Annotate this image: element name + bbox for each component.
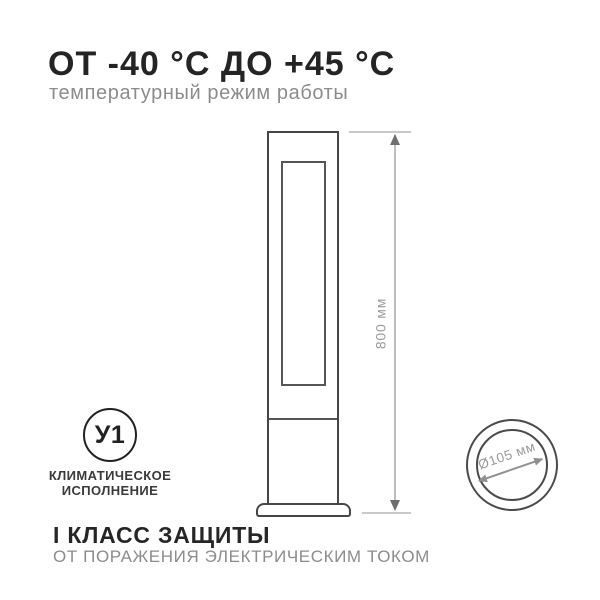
arrowhead-up-icon	[390, 134, 400, 145]
protection-class-title: I КЛАСС ЗАЩИТЫ	[53, 522, 270, 548]
height-dimension-label: 800 мм	[373, 294, 390, 354]
climate-rating-label: КЛИМАТИЧЕСКОЕ ИСПОЛНЕНИЕ	[25, 469, 195, 498]
dimension-line-vertical	[394, 135, 396, 507]
temperature-range-subtitle: температурный режим работы	[49, 81, 348, 105]
extension-line-top	[349, 131, 411, 133]
protection-class-subtitle: ОТ ПОРАЖЕНИЯ ЭЛЕКТРИЧЕСКИМ ТОКОМ	[53, 547, 430, 567]
climate-label-line1: КЛИМАТИЧЕСКОЕ	[25, 469, 195, 484]
arrowhead-down-icon	[390, 500, 400, 511]
lamp-diffuser-window	[281, 161, 326, 386]
extension-line-bottom	[362, 512, 411, 514]
temperature-range-title: ОТ -40 °С ДО +45 °С	[48, 46, 395, 83]
lamp-body-divider-line	[269, 418, 337, 420]
climate-badge-icon: У1	[83, 408, 137, 462]
lamp-base-outline	[256, 503, 351, 517]
product-spec-infographic: { "header": { "title": "ОТ -40 °С ДО +45…	[0, 0, 600, 600]
climate-badge-code: У1	[95, 421, 125, 450]
climate-label-line2: ИСПОЛНЕНИЕ	[25, 484, 195, 499]
